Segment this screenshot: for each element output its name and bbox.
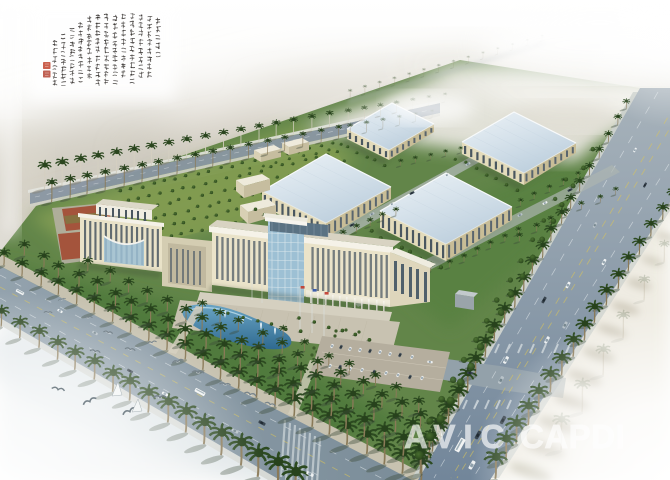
svg-text:CAPDI: CAPDI [520, 418, 625, 455]
svg-text:AVIC: AVIC [404, 418, 512, 455]
